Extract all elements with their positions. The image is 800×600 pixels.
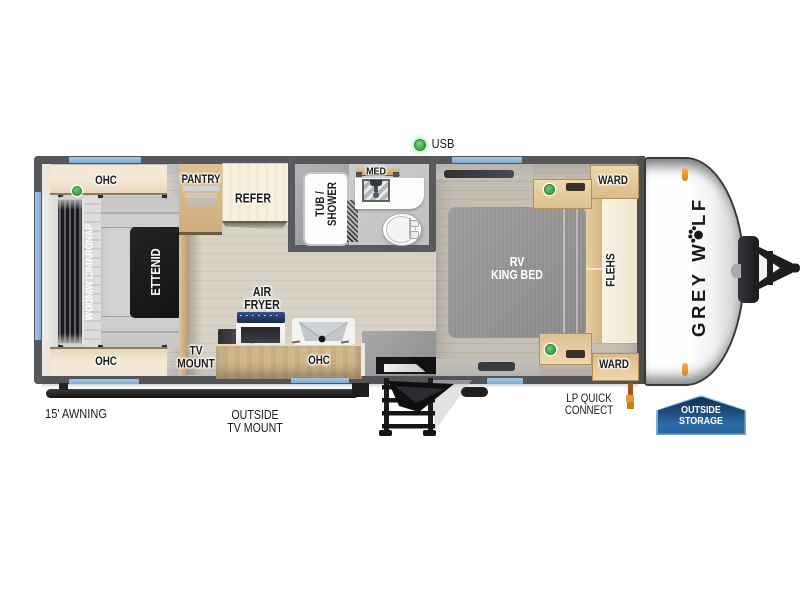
svg-text:LF: LF: [688, 196, 709, 226]
svg-text:GREY W: GREY W: [688, 241, 709, 337]
